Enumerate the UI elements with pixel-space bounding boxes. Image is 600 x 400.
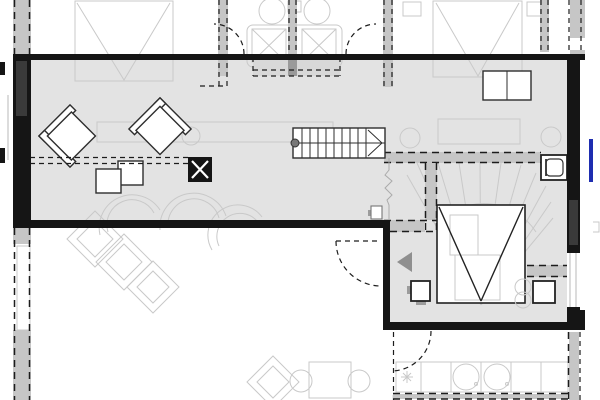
right-edge-mark: [593, 222, 599, 232]
wall-right-lower: [567, 310, 585, 330]
ghost-window-left: [17, 246, 30, 330]
accent-marker-blue: [589, 139, 593, 182]
basin-circle-icon: [304, 0, 330, 24]
wall-vertical-mid: [383, 228, 390, 330]
straight-stair: [291, 128, 385, 158]
wood-stove-icon: [188, 157, 212, 182]
basin-circle-icon: [259, 0, 285, 24]
stair-newel: [291, 139, 299, 147]
floor-plan: [0, 0, 600, 400]
wall-top: [13, 54, 585, 60]
side-table-icon: [96, 169, 121, 193]
floor-plan-canvas: [0, 0, 600, 400]
door-swing-arc: [346, 24, 376, 54]
washbasin-icon: [541, 155, 567, 180]
sink-circle-icon: [453, 364, 479, 390]
side-table-icon: [118, 161, 143, 185]
left-edge-tick: [0, 62, 5, 75]
left-edge-tick: [0, 148, 5, 163]
fixture-square-left: [407, 281, 430, 305]
wall-bottom-right: [383, 322, 585, 330]
desk-icon: [483, 71, 531, 100]
sink-circle-icon: [484, 364, 510, 390]
window-right: [567, 250, 580, 310]
door-swing-arc: [336, 241, 381, 286]
ghost-armchairs-below: [67, 211, 299, 400]
void-v-marking: [437, 205, 525, 303]
ghost-kitchen-below: [396, 362, 568, 392]
ghost-dining-below: [290, 362, 370, 398]
freezer-snowflake-icon: [401, 371, 413, 383]
door-swing-arc: [391, 331, 431, 371]
wall-bottom-left: [13, 220, 390, 228]
